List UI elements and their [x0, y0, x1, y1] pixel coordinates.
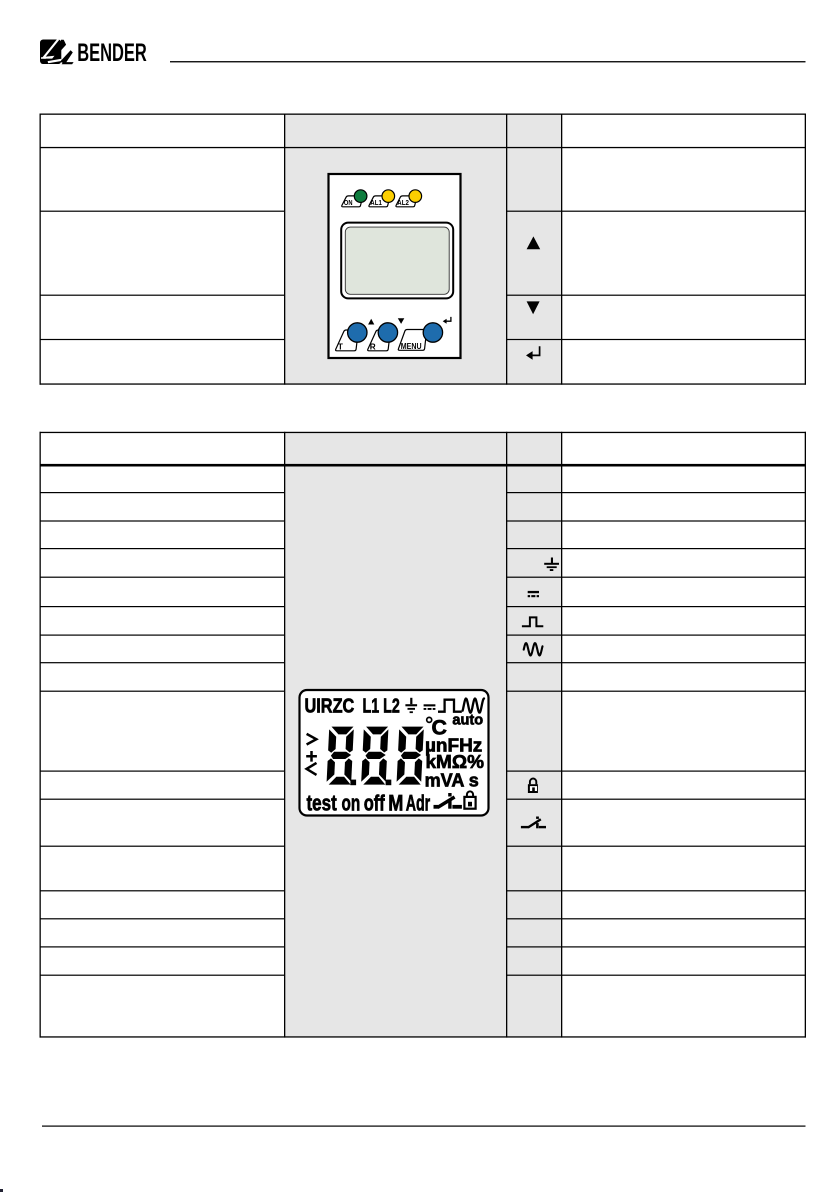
svg-text:M: M [388, 791, 403, 816]
svg-text:on: on [342, 791, 361, 816]
svg-text:AL1: AL1 [370, 200, 382, 207]
svg-text:BENDER: BENDER [77, 39, 147, 67]
svg-text:T: T [338, 342, 343, 351]
svg-text:test: test [307, 791, 338, 816]
svg-text:UIRZC: UIRZC [305, 694, 355, 717]
svg-text:auto: auto [452, 712, 483, 729]
svg-text:L1 L2: L1 L2 [363, 694, 400, 717]
svg-text:Adr: Adr [406, 791, 431, 816]
svg-text:mVA s: mVA s [425, 770, 479, 791]
svg-text:AL2: AL2 [397, 200, 409, 207]
svg-text:ON: ON [344, 200, 353, 207]
svg-text:MENU: MENU [401, 342, 422, 351]
svg-text:off: off [364, 791, 386, 816]
svg-text:R: R [370, 342, 376, 351]
